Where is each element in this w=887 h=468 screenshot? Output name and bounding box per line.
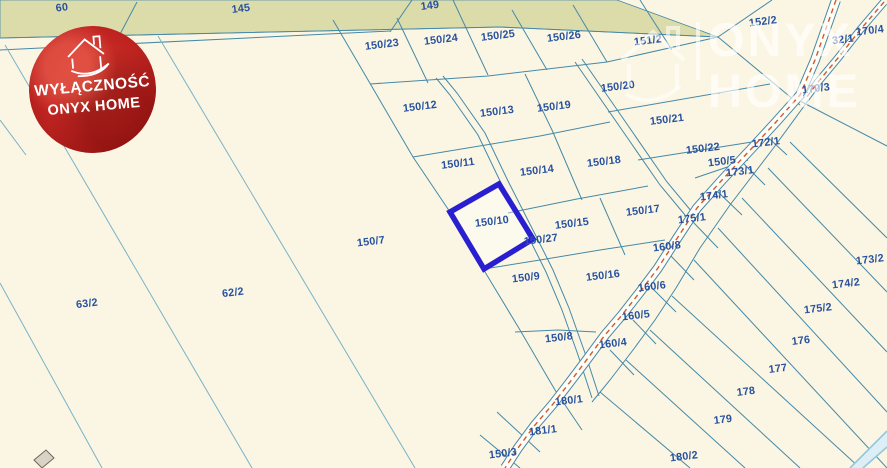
parcel-label-60: 60	[55, 1, 69, 14]
parcel-label-176: 176	[791, 334, 811, 348]
parcel-label-178: 178	[736, 385, 756, 399]
parcel-label-177: 177	[768, 362, 788, 376]
badge-house-icon	[60, 33, 119, 80]
parcel-label-145: 145	[231, 2, 251, 16]
parcel-label-149: 149	[420, 0, 440, 13]
cadastral-map-page: { "map": { "width": 887, "height": 468, …	[0, 0, 887, 468]
parcel-label-179: 179	[713, 413, 733, 427]
